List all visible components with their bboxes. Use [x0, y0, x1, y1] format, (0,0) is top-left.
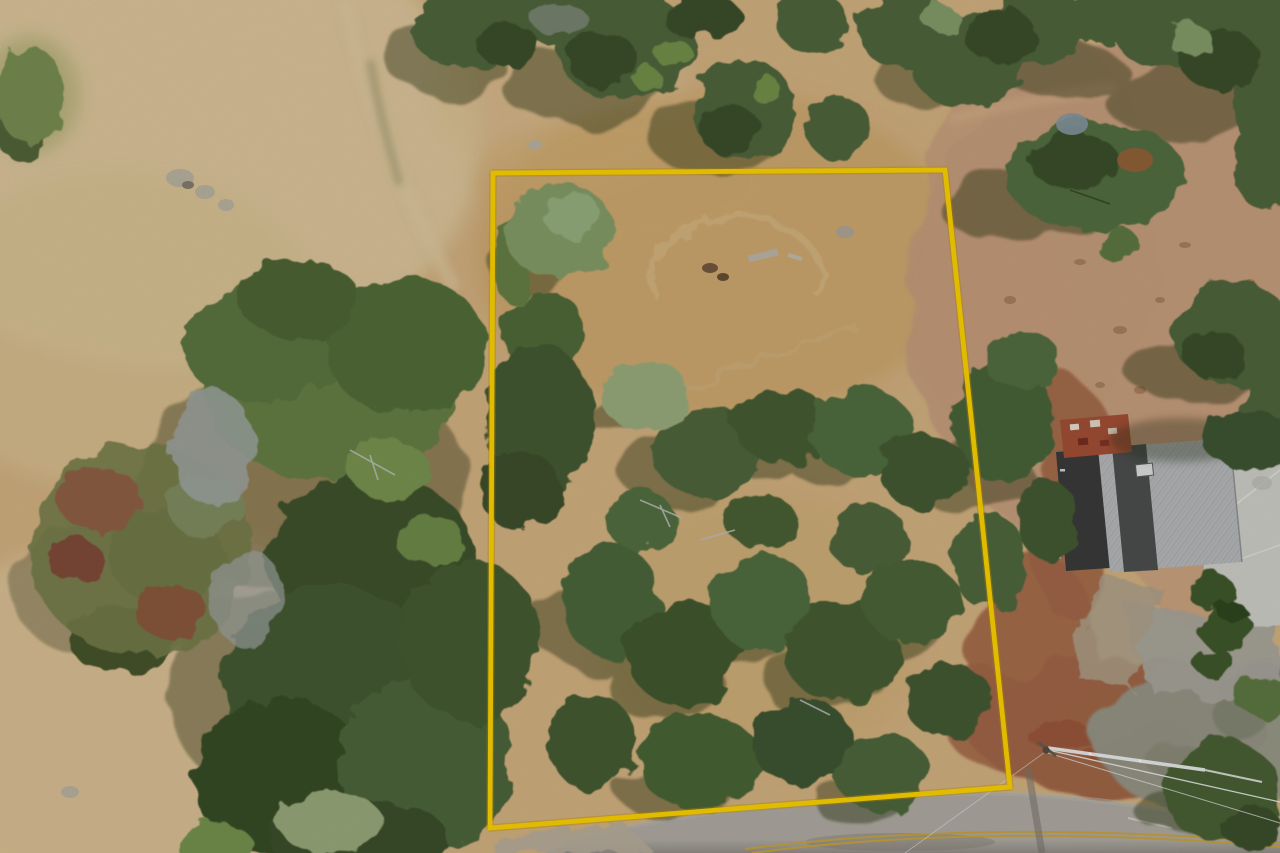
warm-tint: [0, 0, 1280, 853]
aerial-photo: [0, 0, 1280, 853]
aerial-photo-canvas: [0, 0, 1280, 853]
